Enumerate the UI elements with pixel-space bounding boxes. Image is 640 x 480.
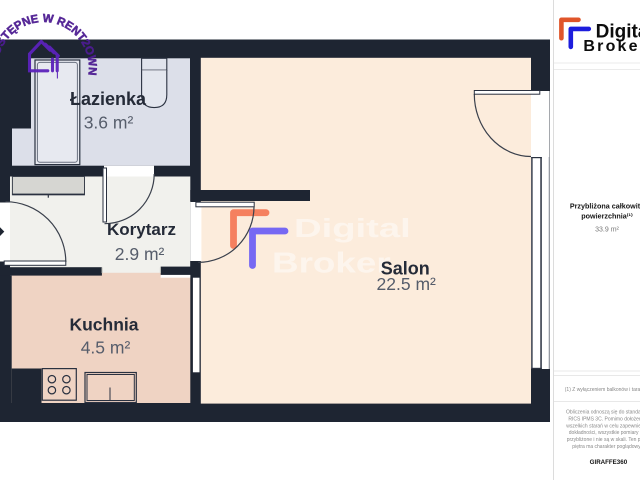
svg-text:22.5 m²: 22.5 m² <box>377 274 436 294</box>
svg-text:Obliczenia odnoszą się do stan: Obliczenia odnoszą się do standardu <box>566 410 640 416</box>
svg-text:2.9 m²: 2.9 m² <box>115 244 165 264</box>
svg-text:piętra ma charakter poglądowy.: piętra ma charakter poglądowy. <box>572 444 640 450</box>
svg-text:4.5 m²: 4.5 m² <box>81 337 131 357</box>
svg-text:dokładności, wszystkie pomiary: dokładności, wszystkie pomiary są <box>569 430 640 436</box>
svg-text:Broker: Broker <box>583 38 640 55</box>
svg-text:3.6 m²: 3.6 m² <box>84 112 134 132</box>
svg-text:przybliżone i nie są w skali.: przybliżone i nie są w skali. Ten plan <box>567 437 640 443</box>
svg-text:Korytarz: Korytarz <box>107 220 176 239</box>
svg-text:Łazienka: Łazienka <box>70 89 147 109</box>
svg-text:wszelkich starań w celu zapewn: wszelkich starań w celu zapewnienia <box>566 423 640 429</box>
svg-text:Digital: Digital <box>294 213 411 242</box>
svg-text:Broker: Broker <box>272 247 391 279</box>
svg-text:Przybliżona całkowita: Przybliżona całkowita <box>570 202 640 211</box>
svg-text:GIRAFFE360: GIRAFFE360 <box>590 459 628 466</box>
svg-text:Kuchnia: Kuchnia <box>69 315 138 335</box>
svg-text:(1) Z wyłączeniem balkonów i t: (1) Z wyłączeniem balkonów i tarasów <box>565 387 640 393</box>
svg-text:powierzchnia⁽¹⁾: powierzchnia⁽¹⁾ <box>581 212 633 221</box>
svg-text:RICS IPMS 3C. Pomimo dołożenia: RICS IPMS 3C. Pomimo dołożenia <box>568 416 640 422</box>
svg-text:33.9 m²: 33.9 m² <box>595 227 619 234</box>
